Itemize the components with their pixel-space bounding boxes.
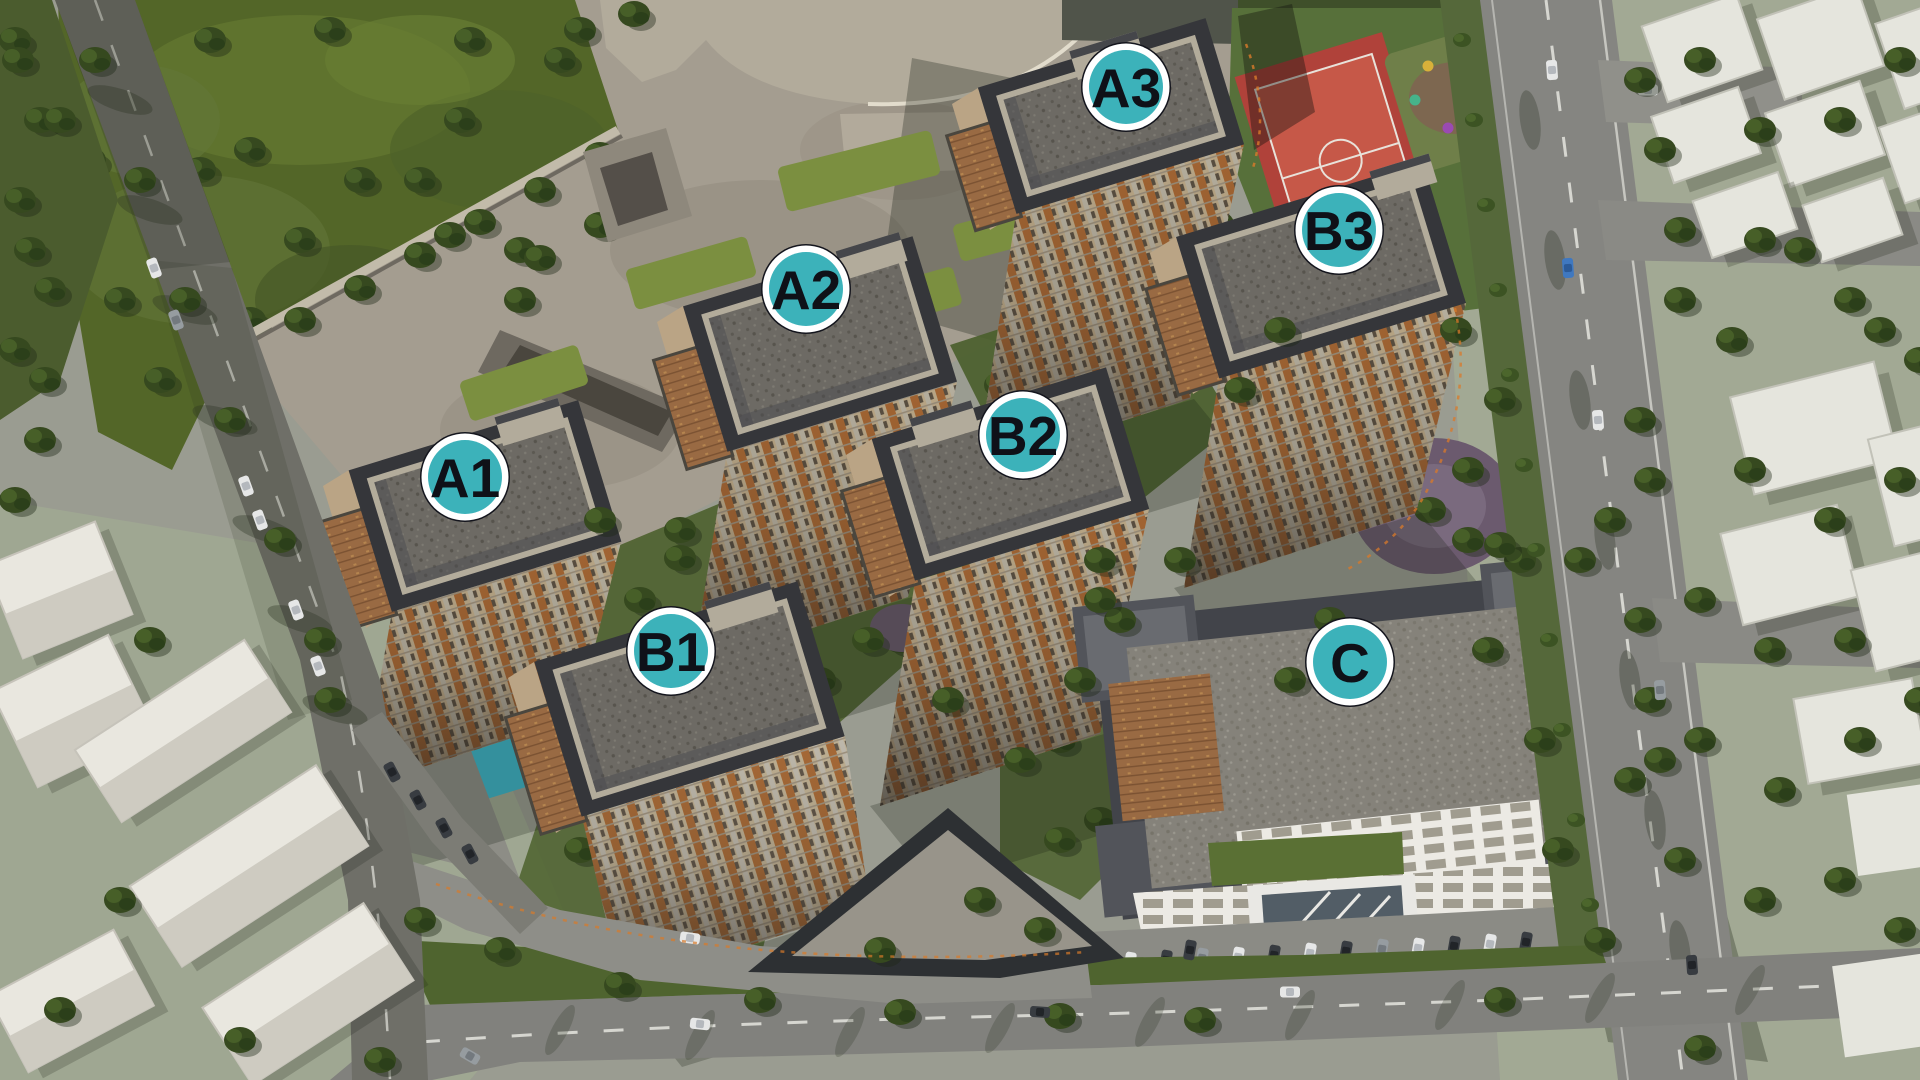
svg-text:A3: A3 xyxy=(1091,57,1161,119)
svg-text:C: C xyxy=(1330,632,1370,694)
svg-text:A1: A1 xyxy=(430,447,500,509)
svg-text:B3: B3 xyxy=(1304,200,1374,262)
svg-text:A2: A2 xyxy=(771,259,841,321)
svg-text:B2: B2 xyxy=(988,405,1058,467)
svg-text:B1: B1 xyxy=(636,621,706,683)
